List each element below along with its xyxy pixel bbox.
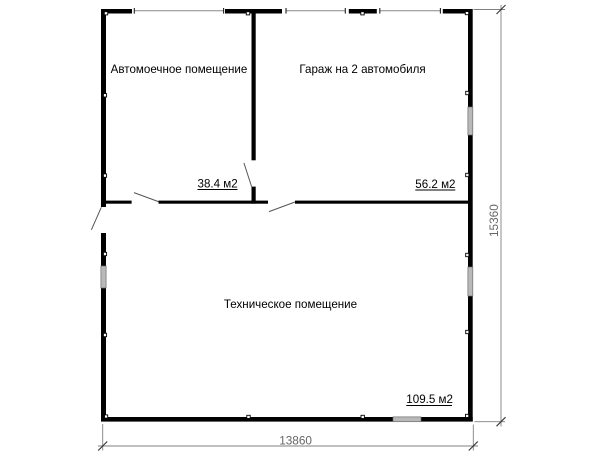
svg-text:109.5 м2: 109.5 м2	[406, 393, 453, 406]
svg-text:15360: 15360	[487, 204, 501, 237]
svg-text:Автомоечное помещение: Автомоечное помещение	[111, 63, 248, 76]
svg-text:38.4 м2: 38.4 м2	[198, 178, 238, 191]
svg-text:Техническое помещение: Техническое помещение	[224, 298, 357, 311]
svg-text:Гараж на 2 автомобиля: Гараж на 2 автомобиля	[299, 63, 425, 76]
svg-text:56.2 м2: 56.2 м2	[415, 178, 455, 191]
svg-text:13860: 13860	[279, 433, 312, 447]
